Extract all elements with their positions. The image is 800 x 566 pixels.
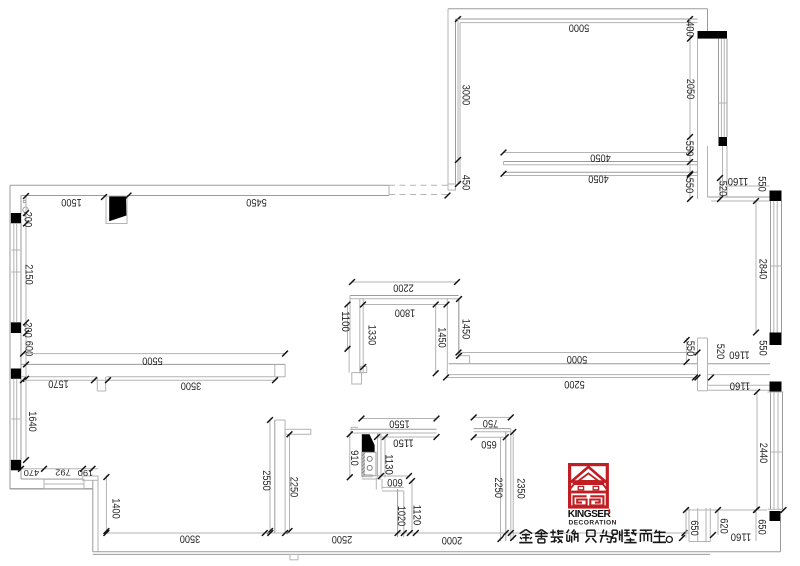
svg-text:792: 792 bbox=[55, 468, 71, 478]
svg-text:1120: 1120 bbox=[411, 505, 423, 526]
svg-text:2350: 2350 bbox=[515, 478, 527, 499]
svg-text:400: 400 bbox=[684, 21, 696, 37]
svg-text:190: 190 bbox=[78, 468, 94, 478]
svg-text:450: 450 bbox=[460, 175, 472, 191]
svg-text:1020: 1020 bbox=[395, 506, 407, 527]
svg-text:2500: 2500 bbox=[332, 533, 353, 545]
svg-text:1160: 1160 bbox=[731, 531, 752, 543]
svg-text:550: 550 bbox=[757, 340, 769, 356]
svg-text:3500: 3500 bbox=[180, 533, 201, 545]
svg-text:2200: 2200 bbox=[393, 282, 414, 294]
svg-text:3500: 3500 bbox=[181, 380, 202, 392]
svg-text:1640: 1640 bbox=[26, 411, 38, 432]
svg-text:5500: 5500 bbox=[142, 354, 163, 366]
svg-text:470: 470 bbox=[24, 468, 40, 478]
svg-text:1100: 1100 bbox=[339, 311, 351, 332]
svg-text:2550: 2550 bbox=[260, 470, 272, 491]
svg-text:200: 200 bbox=[22, 322, 34, 338]
svg-text:1450: 1450 bbox=[460, 319, 472, 340]
svg-text:2250: 2250 bbox=[288, 477, 300, 498]
svg-text:600: 600 bbox=[387, 476, 403, 488]
svg-text:1150: 1150 bbox=[393, 437, 414, 449]
svg-text:5200: 5200 bbox=[564, 378, 585, 390]
svg-text:650: 650 bbox=[481, 438, 497, 450]
svg-text:1550: 1550 bbox=[389, 418, 410, 430]
svg-text:750: 750 bbox=[483, 417, 499, 429]
svg-text:5000: 5000 bbox=[567, 353, 588, 365]
svg-text:1400: 1400 bbox=[110, 498, 122, 519]
svg-text:4050: 4050 bbox=[588, 173, 609, 185]
svg-text:1330: 1330 bbox=[366, 325, 378, 346]
svg-text:2150: 2150 bbox=[23, 264, 35, 285]
svg-text:200: 200 bbox=[22, 212, 34, 228]
svg-text:650: 650 bbox=[688, 520, 700, 536]
svg-text:1500: 1500 bbox=[61, 196, 82, 208]
svg-text:550: 550 bbox=[683, 178, 695, 194]
svg-text:1570: 1570 bbox=[48, 378, 69, 390]
svg-text:1160: 1160 bbox=[729, 349, 750, 361]
svg-text:DECORATION: DECORATION bbox=[569, 519, 617, 526]
svg-text:550: 550 bbox=[756, 176, 768, 192]
svg-text:910: 910 bbox=[348, 450, 360, 466]
svg-text:520: 520 bbox=[714, 344, 726, 360]
svg-text:550: 550 bbox=[684, 341, 696, 357]
svg-text:2840: 2840 bbox=[757, 259, 769, 280]
svg-text:3000: 3000 bbox=[460, 85, 472, 106]
svg-text:620: 620 bbox=[718, 518, 730, 534]
svg-text:2440: 2440 bbox=[757, 443, 769, 464]
svg-text:1160: 1160 bbox=[728, 175, 749, 187]
svg-text:4050: 4050 bbox=[590, 152, 611, 164]
svg-text:2050: 2050 bbox=[684, 79, 696, 100]
svg-text:2000: 2000 bbox=[442, 534, 463, 546]
svg-text:5450: 5450 bbox=[246, 196, 267, 208]
svg-text:KINGSER: KINGSER bbox=[568, 509, 612, 520]
svg-text:2250: 2250 bbox=[492, 477, 504, 498]
svg-text:1130: 1130 bbox=[383, 454, 395, 475]
svg-text:1800: 1800 bbox=[395, 307, 416, 319]
svg-text:520: 520 bbox=[717, 181, 729, 197]
svg-text:650: 650 bbox=[756, 519, 768, 535]
svg-text:5000: 5000 bbox=[569, 22, 590, 34]
svg-text:1450: 1450 bbox=[436, 327, 448, 348]
svg-text:1160: 1160 bbox=[730, 380, 751, 392]
